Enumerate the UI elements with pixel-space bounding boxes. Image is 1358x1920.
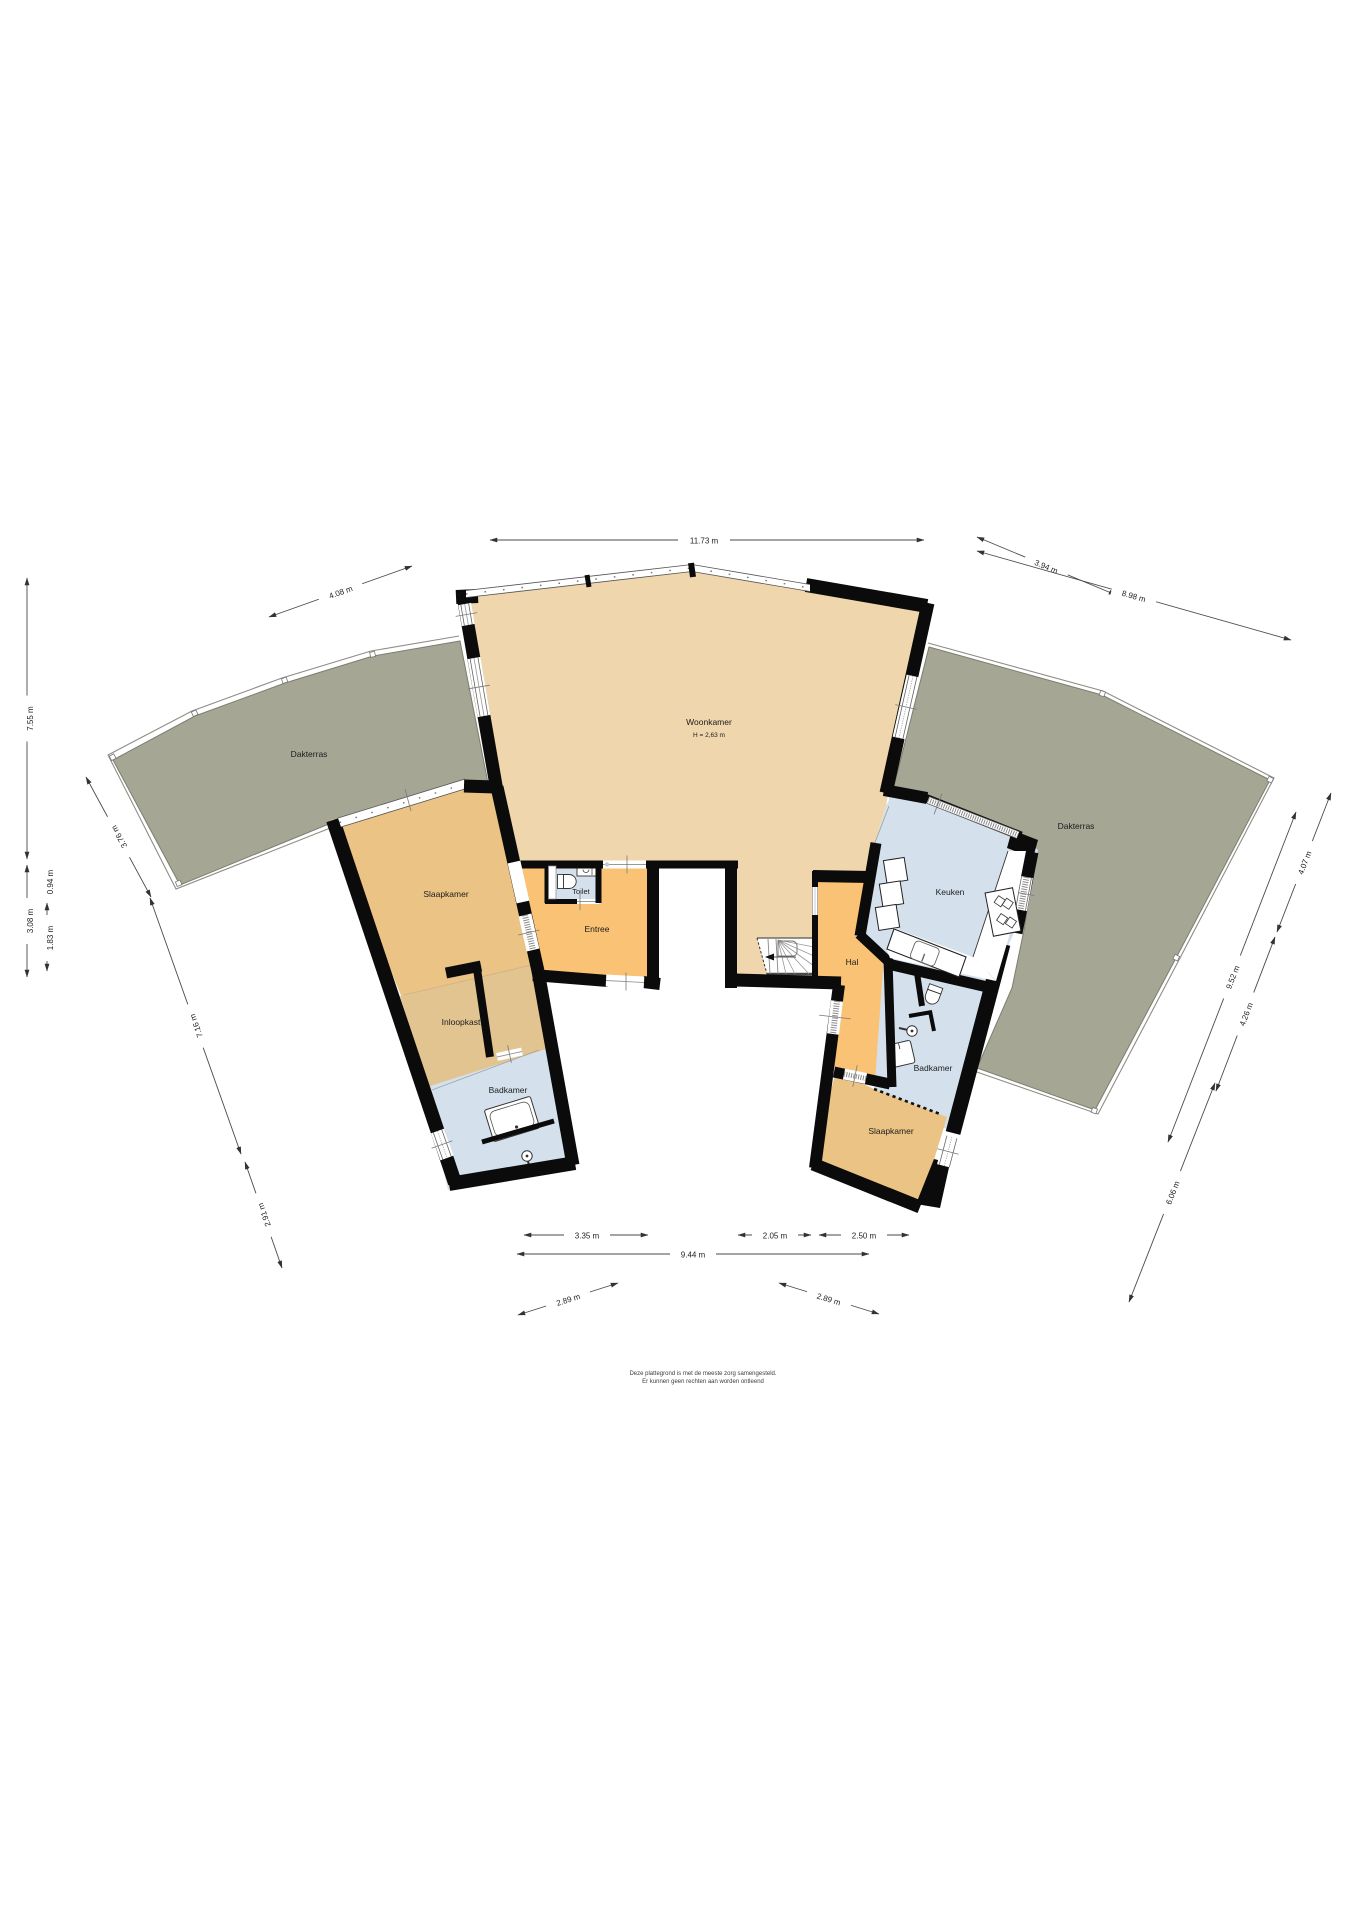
svg-text:Inloopkast: Inloopkast bbox=[442, 1017, 481, 1027]
svg-text:Woonkamer: Woonkamer bbox=[686, 717, 732, 727]
svg-text:Er kunnen geen rechten aan wor: Er kunnen geen rechten aan worden ontlee… bbox=[642, 1379, 764, 1385]
svg-text:Slaapkamer: Slaapkamer bbox=[868, 1126, 914, 1136]
svg-text:3.35 m: 3.35 m bbox=[575, 1232, 600, 1241]
svg-text:Keuken: Keuken bbox=[936, 887, 965, 897]
svg-text:11.73 m: 11.73 m bbox=[690, 537, 719, 546]
svg-text:0.94 m: 0.94 m bbox=[46, 869, 55, 894]
svg-text:Deze plattegrond is met de mee: Deze plattegrond is met de meeste zorg s… bbox=[629, 1371, 776, 1377]
svg-text:Slaapkamer: Slaapkamer bbox=[423, 889, 469, 899]
svg-text:Dakterras: Dakterras bbox=[1058, 821, 1095, 831]
svg-text:3.08 m: 3.08 m bbox=[26, 908, 35, 933]
svg-text:Badkamer: Badkamer bbox=[489, 1085, 528, 1095]
svg-text:Toilet: Toilet bbox=[572, 887, 590, 896]
svg-text:Badkamer: Badkamer bbox=[914, 1063, 953, 1073]
svg-text:Dakterras: Dakterras bbox=[291, 749, 328, 759]
svg-text:Hal: Hal bbox=[846, 957, 859, 967]
svg-text:2.50 m: 2.50 m bbox=[852, 1232, 877, 1241]
svg-text:Entree: Entree bbox=[584, 924, 609, 934]
svg-text:7.55 m: 7.55 m bbox=[26, 706, 35, 731]
svg-text:2.05 m: 2.05 m bbox=[763, 1232, 788, 1241]
svg-text:1.83 m: 1.83 m bbox=[46, 925, 55, 950]
svg-text:H = 2,63 m: H = 2,63 m bbox=[693, 732, 725, 739]
svg-text:9.44 m: 9.44 m bbox=[681, 1251, 706, 1260]
